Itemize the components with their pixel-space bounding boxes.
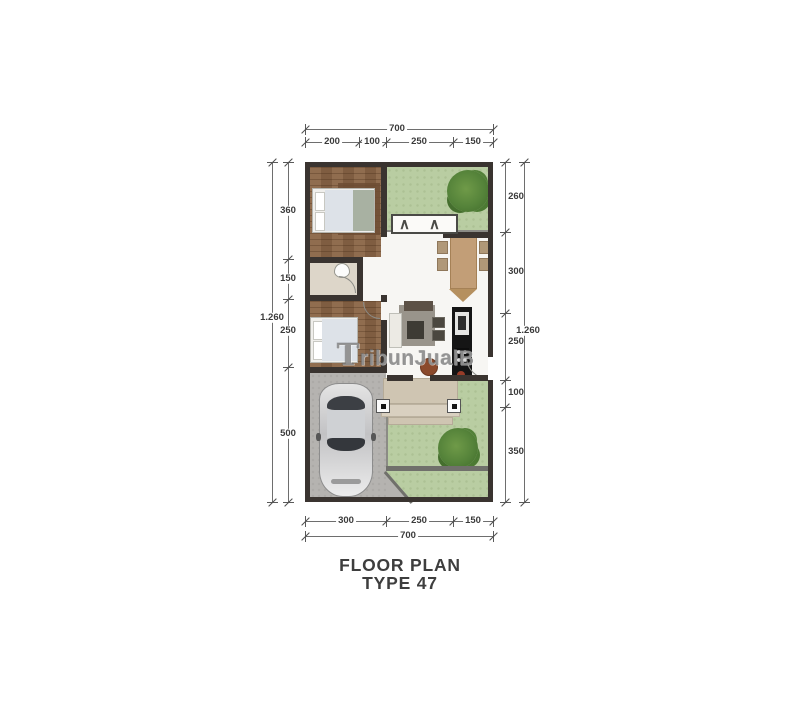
car-grill bbox=[331, 479, 361, 484]
car-roof bbox=[327, 410, 365, 438]
plan-title-line2: TYPE 47 bbox=[250, 574, 550, 592]
wall-bathroom-bottom bbox=[305, 295, 357, 301]
dim-label: 300 bbox=[506, 267, 526, 277]
dim-tick bbox=[493, 516, 494, 527]
wall-bathroom-right bbox=[357, 257, 363, 301]
dim-label: 300 bbox=[336, 516, 356, 526]
dim-tick bbox=[283, 502, 294, 503]
dining-table-end bbox=[449, 289, 477, 302]
dim-label-top-total: 700 bbox=[387, 124, 407, 134]
dim-tick bbox=[500, 380, 511, 381]
sink-icon bbox=[455, 312, 469, 335]
window-glyph-icon: ∧ bbox=[399, 217, 410, 232]
wall-right-upper bbox=[488, 162, 493, 357]
dim-label: 150 bbox=[463, 137, 483, 147]
terrace-post-icon bbox=[447, 399, 461, 413]
plan-title: FLOOR PLAN TYPE 47 bbox=[250, 556, 550, 593]
dim-tick bbox=[305, 516, 306, 527]
dim-label: 260 bbox=[506, 192, 526, 202]
dim-tick bbox=[267, 162, 278, 163]
dim-tick bbox=[359, 137, 360, 148]
dim-tick bbox=[305, 137, 306, 148]
dim-tick bbox=[283, 367, 294, 368]
dim-tick bbox=[386, 516, 387, 527]
terrace-post-icon bbox=[376, 399, 390, 413]
tv-cabinet-icon bbox=[404, 301, 433, 311]
dim-tick bbox=[493, 531, 494, 542]
dim-tick bbox=[493, 124, 494, 135]
tree-icon bbox=[447, 170, 489, 212]
window-glyph-icon: ∧ bbox=[429, 217, 440, 232]
dim-label: 150 bbox=[278, 274, 298, 284]
bed-icon bbox=[312, 188, 375, 233]
dim-label: 360 bbox=[278, 206, 298, 216]
pillow-icon bbox=[315, 192, 325, 211]
chair-icon bbox=[437, 258, 448, 271]
dim-tick bbox=[500, 313, 511, 314]
tree-icon bbox=[438, 428, 478, 468]
car-mirror-icon bbox=[316, 433, 321, 441]
wall-front-a bbox=[387, 375, 413, 381]
dim-label: 150 bbox=[463, 516, 483, 526]
wall-top bbox=[305, 162, 493, 167]
dim-tick bbox=[500, 407, 511, 408]
dim-label: 100 bbox=[506, 388, 526, 398]
dim-tick bbox=[500, 232, 511, 233]
bed-duvet bbox=[325, 190, 353, 231]
dining-table-icon bbox=[450, 236, 477, 289]
dim-label: 100 bbox=[362, 137, 382, 147]
dim-label: 250 bbox=[278, 326, 298, 336]
dim-label: 500 bbox=[278, 429, 298, 439]
dim-tick bbox=[519, 162, 530, 163]
dim-tick bbox=[493, 137, 494, 148]
car-windshield bbox=[327, 438, 365, 451]
wall-bedroom1-right bbox=[381, 162, 387, 237]
bed-throw bbox=[353, 190, 374, 231]
coffee-table-icon bbox=[407, 321, 424, 339]
dim-label-right-total: 1.260 bbox=[514, 326, 542, 336]
floor-plan-image: ∧ ∧ TribunJualB 700 200 100 250 150 1.26… bbox=[0, 0, 800, 714]
chair-icon bbox=[437, 241, 448, 254]
terrace-step-3 bbox=[388, 417, 453, 425]
dim-label-bottom-total: 700 bbox=[398, 531, 418, 541]
car-mirror-icon bbox=[371, 433, 376, 441]
dim-tick bbox=[500, 502, 511, 503]
watermark: TribunJualB bbox=[337, 338, 475, 373]
wall-bottom bbox=[305, 497, 493, 502]
plan-title-line1: FLOOR PLAN bbox=[250, 556, 550, 574]
dim-label: 250 bbox=[409, 516, 429, 526]
dim-tick bbox=[283, 259, 294, 260]
dim-label: 350 bbox=[506, 447, 526, 457]
dim-tick bbox=[500, 162, 511, 163]
dim-line bbox=[272, 162, 273, 502]
dim-tick bbox=[283, 299, 294, 300]
pillow-icon bbox=[315, 212, 325, 231]
dim-label: 250 bbox=[506, 337, 526, 347]
car-rear-window bbox=[327, 396, 365, 410]
wall-left bbox=[305, 162, 310, 502]
dim-tick bbox=[305, 531, 306, 542]
dim-tick bbox=[386, 137, 387, 148]
dim-tick bbox=[283, 162, 294, 163]
dim-tick bbox=[453, 137, 454, 148]
dim-tick bbox=[305, 124, 306, 135]
armchair-icon bbox=[432, 317, 445, 328]
dim-tick bbox=[267, 502, 278, 503]
dim-tick bbox=[453, 516, 454, 527]
wall-front-b bbox=[430, 375, 488, 381]
dim-label-left-total: 1.260 bbox=[258, 313, 286, 323]
wall-right-lower bbox=[488, 380, 493, 502]
wall-bedroom2-right-a bbox=[381, 295, 387, 302]
wall-bedroom1-bottom bbox=[305, 257, 360, 263]
dim-label: 200 bbox=[322, 137, 342, 147]
dim-tick bbox=[519, 502, 530, 503]
dim-label: 250 bbox=[409, 137, 429, 147]
car-icon bbox=[319, 383, 373, 497]
